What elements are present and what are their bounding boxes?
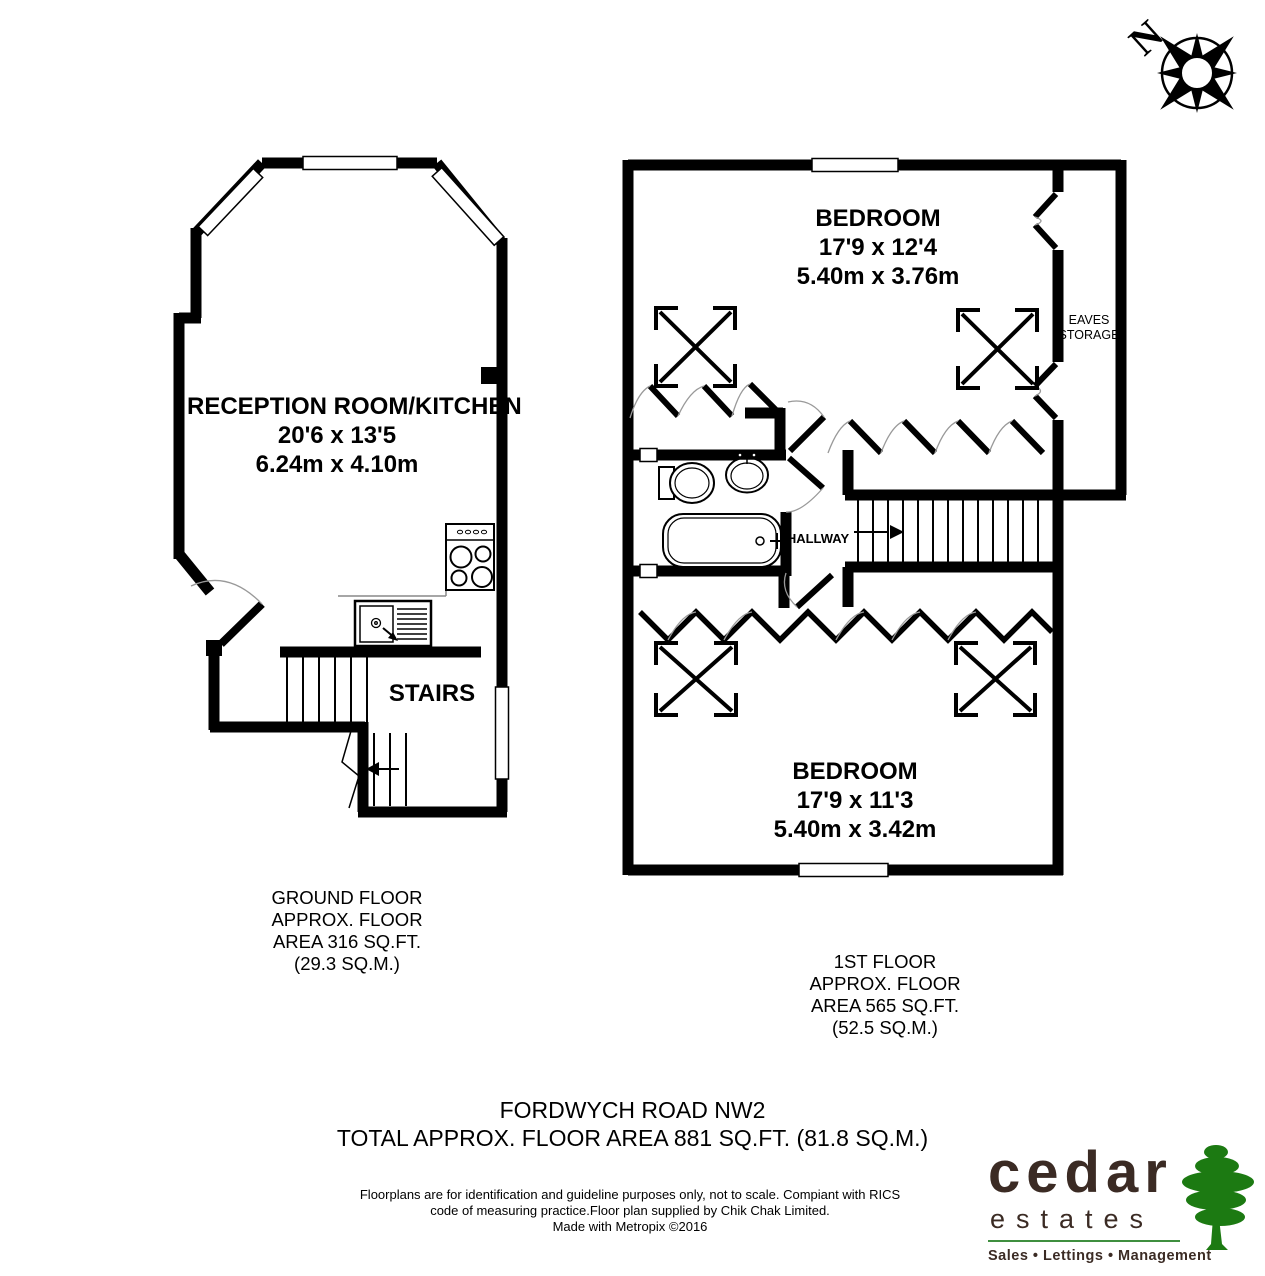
eaves-cupboard-zigzag	[640, 612, 1052, 640]
cedar-estates-logo: cedar estates Sales • Lettings • Managem…	[980, 1146, 1265, 1274]
room-size-imperial: 20'6 x 13'5	[187, 421, 487, 450]
room-name: BEDROOM	[728, 204, 1028, 233]
skylight-icon	[656, 308, 735, 386]
logo-green-rule	[988, 1240, 1180, 1242]
hallway-label: HALLWAY	[786, 531, 850, 546]
ground-floor-caption: GROUND FLOOR APPROX. FLOOR AREA 316 SQ.F…	[247, 887, 447, 975]
room-name: BEDROOM	[705, 757, 1005, 786]
bath-icon	[663, 514, 783, 567]
logo-brand-text: cedar	[988, 1144, 1173, 1202]
room-name: RECEPTION ROOM/KITCHEN	[187, 392, 487, 421]
disclaimer: Floorplans are for identification and gu…	[180, 1187, 1080, 1235]
skylight-icons	[656, 308, 1037, 715]
floorplan-graphics	[0, 0, 1265, 1276]
wall-pier	[481, 367, 503, 384]
logo-sub-text: estates	[990, 1206, 1154, 1233]
stove-icon	[446, 524, 494, 590]
bedroom-top-label: BEDROOM 17'9 x 12'4 5.40m x 3.76m	[728, 204, 1028, 291]
kitchen-sink-icon	[355, 601, 431, 646]
room-size-metric: 5.40m x 3.42m	[705, 815, 1005, 844]
stairs-label: STAIRS	[352, 679, 512, 708]
address-line: FORDWYCH ROAD NW2	[0, 1096, 1265, 1124]
first-floor-stairs-icon	[854, 499, 1038, 563]
kitchen-counter-line	[338, 524, 446, 596]
room-size-imperial: 17'9 x 11'3	[705, 786, 1005, 815]
skylight-icon	[956, 643, 1035, 715]
skylight-icon	[656, 643, 736, 715]
skylight-icon	[958, 310, 1037, 388]
first-floor-caption: 1ST FLOOR APPROX. FLOOR AREA 565 SQ.FT. …	[785, 951, 985, 1039]
ground-floor-walls	[179, 163, 507, 812]
eaves-storage-label: EAVES STORAGE	[1056, 313, 1122, 343]
room-size-imperial: 17'9 x 12'4	[728, 233, 1028, 262]
toilet-icon	[659, 463, 714, 503]
room-size-metric: 6.24m x 4.10m	[187, 450, 487, 479]
ground-floor-plan	[179, 157, 509, 813]
logo-tagline: Sales • Lettings • Management	[988, 1248, 1212, 1264]
bedroom-bottom-label: BEDROOM 17'9 x 11'3 5.40m x 3.42m	[705, 757, 1005, 844]
entrance-door-leaf	[221, 604, 262, 644]
floorplan-page: N RECEPTION ROOM/KITCHEN 20'6 x 13'5 6.2…	[0, 0, 1265, 1276]
reception-room-label: RECEPTION ROOM/KITCHEN 20'6 x 13'5 6.24m…	[187, 392, 487, 479]
room-size-metric: 5.40m x 3.76m	[728, 262, 1028, 291]
